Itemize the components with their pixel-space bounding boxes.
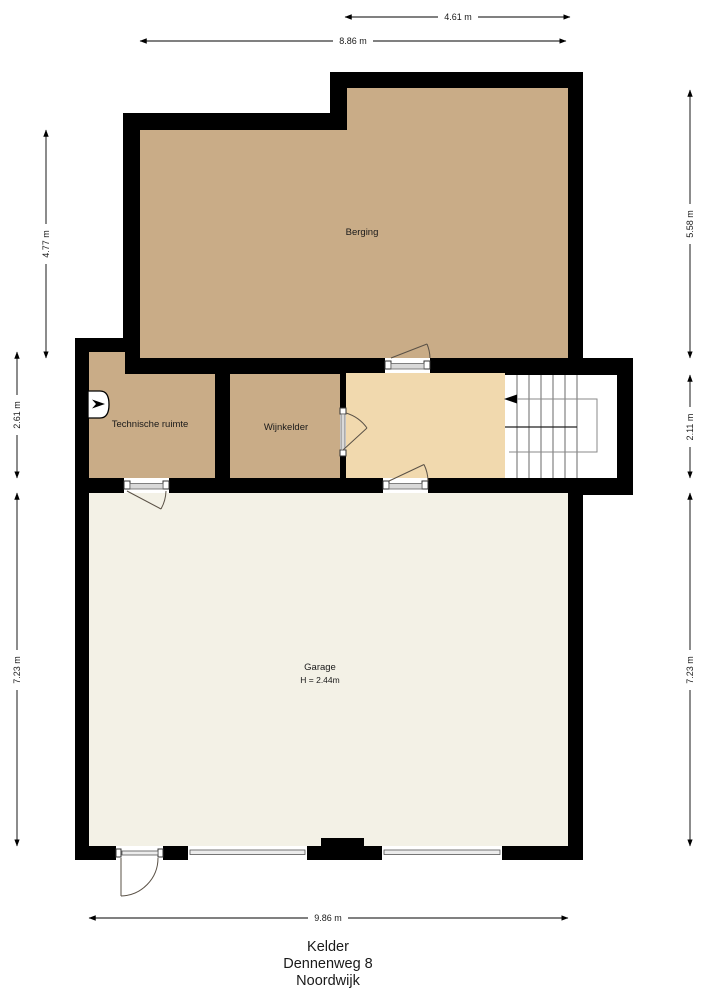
- dimension-left-lower: 7.23 m: [11, 493, 23, 846]
- dimension-left-upper: 4.77 m: [40, 130, 52, 358]
- room-floor-hall: [346, 373, 505, 478]
- room-label-berging: Berging: [346, 227, 379, 238]
- wall-pilaster: [321, 838, 364, 847]
- dimension-top-inner: 4.61 m: [345, 11, 570, 23]
- floorplan-page: Berging Technische ruimte Wijnkelder Gar…: [0, 0, 707, 1000]
- svg-text:4.77 m: 4.77 m: [41, 230, 51, 258]
- dimension-bottom: 9.86 m: [89, 912, 568, 924]
- dimension-right-lower: 7.23 m: [684, 493, 696, 846]
- svg-text:9.86 m: 9.86 m: [314, 913, 342, 923]
- svg-text:2.61 m: 2.61 m: [12, 401, 22, 429]
- floorplan-canvas: Berging Technische ruimte Wijnkelder Gar…: [0, 0, 707, 1000]
- plan-title-address: Dennenweg 8: [283, 956, 373, 972]
- dimension-right-upper: 5.58 m: [684, 90, 696, 358]
- title-block: Kelder Dennenweg 8 Noordwijk: [283, 939, 373, 989]
- garage-door-right: [382, 846, 502, 860]
- svg-text:8.86 m: 8.86 m: [339, 36, 367, 46]
- ventilation-unit-icon: [88, 391, 109, 418]
- svg-text:5.58 m: 5.58 m: [685, 210, 695, 238]
- svg-text:7.23 m: 7.23 m: [12, 656, 22, 684]
- plan-title-city: Noordwijk: [296, 973, 360, 989]
- svg-text:4.61 m: 4.61 m: [444, 12, 472, 22]
- svg-text:7.23 m: 7.23 m: [685, 656, 695, 684]
- dimension-right-middle: 2.11 m: [684, 375, 696, 478]
- dimension-left-middle: 2.61 m: [11, 352, 23, 478]
- room-label-wijnkelder: Wijnkelder: [264, 422, 308, 433]
- dimension-top-outer: 8.86 m: [140, 35, 566, 47]
- garage-door-left: [188, 846, 307, 860]
- room-label-garage-height: H = 2.44m: [300, 675, 339, 685]
- room-label-technische-ruimte: Technische ruimte: [112, 419, 189, 430]
- plan-title-floor: Kelder: [307, 939, 349, 955]
- svg-text:2.11 m: 2.11 m: [685, 414, 695, 441]
- door-exterior: [116, 846, 163, 896]
- room-label-garage: Garage: [304, 662, 336, 673]
